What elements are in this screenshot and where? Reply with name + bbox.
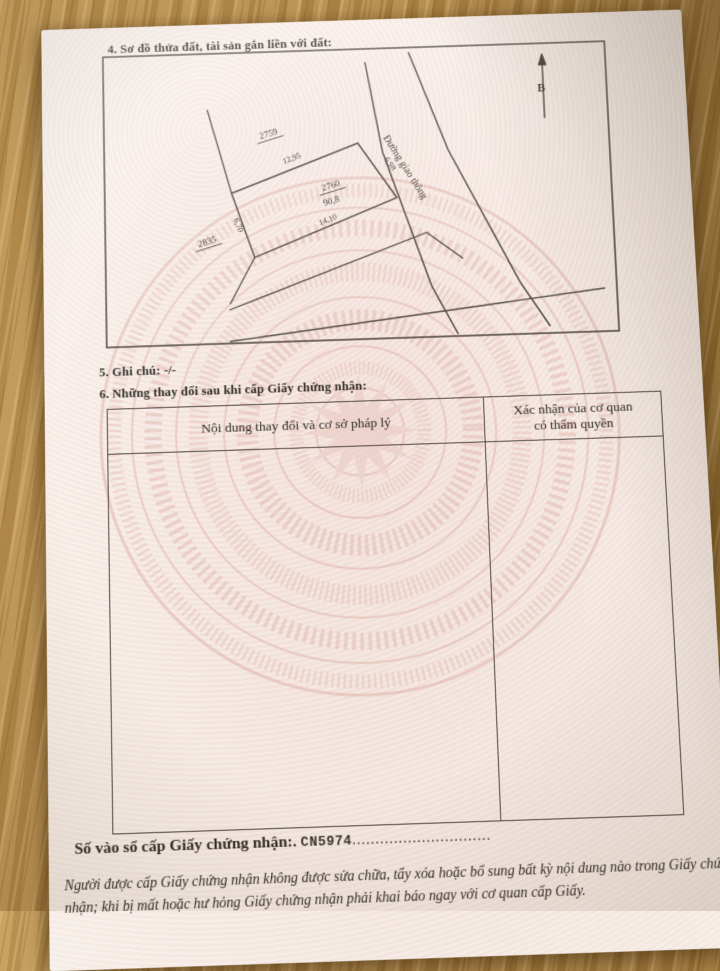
dim-top: 12,95 [281,151,302,166]
road-edge-right [408,48,550,330]
confirm-cell [486,436,684,821]
col-confirm-header-line1: Xác nhận của cơ quan [513,399,633,418]
section5-title: 5. Ghi chú: -/- [99,363,176,380]
certificate-page: 4. Sơ đồ thửa đất, tài sản gắn liền với … [41,10,720,971]
changes-table: Nội dung thay đổi và cơ sở pháp lý Xác n… [107,391,685,835]
boundary-line [229,257,256,304]
plot-diagram: B Đường giao thông 12,95 6,98 6,70 14,10… [102,40,620,348]
col-confirm-header: Xác nhận của cơ quan có thẩm quyền [484,391,663,442]
content-cell [108,442,502,834]
dotted-leader: .............................. [352,828,492,849]
north-label: B [537,81,546,95]
changes-table-body-row [108,436,684,834]
parcel-2760-area: 90,8 [322,195,341,209]
road-edge-left [365,59,459,336]
legal-notice: Người được cấp Giấy chứng nhận không đượ… [64,853,720,920]
registry-number: CN5974 [301,833,353,851]
boundary-line [228,231,465,310]
boundary-line [207,109,231,194]
dim-bottom: 14,10 [317,212,338,227]
parcel-2760-outline [230,142,398,258]
registry-label: Số vào sổ cấp Giấy chứng nhận:. [74,833,297,859]
col-confirm-header-line2: có thẩm quyền [534,415,614,433]
dim-left: 6,70 [232,217,246,234]
